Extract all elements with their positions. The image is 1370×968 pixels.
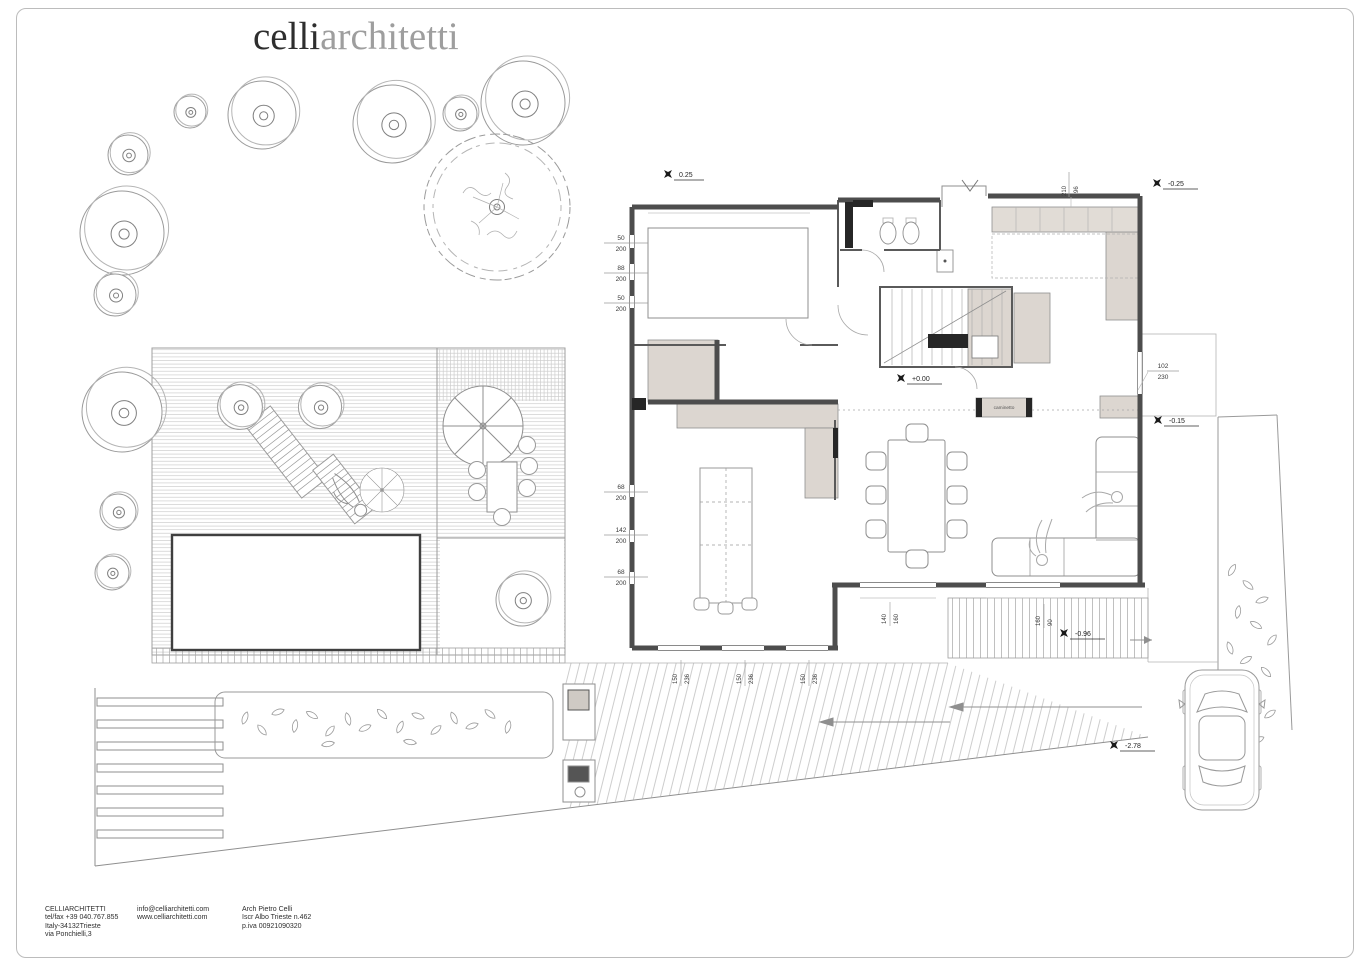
svg-text:230: 230 bbox=[1158, 374, 1169, 381]
terrace-steps bbox=[860, 598, 1152, 658]
svg-text:236: 236 bbox=[685, 673, 691, 684]
svg-text:200: 200 bbox=[616, 495, 627, 502]
studio-email: info@celliarchitetti.com bbox=[137, 906, 209, 914]
level-marker-icon bbox=[1150, 412, 1166, 428]
dimension: 102 230 bbox=[1138, 363, 1179, 390]
car-icon bbox=[1179, 670, 1265, 810]
pool bbox=[172, 535, 420, 650]
level-value: -0.15 bbox=[1169, 418, 1185, 425]
level-marker: +0.00 bbox=[893, 370, 942, 386]
umbrella-icon bbox=[360, 468, 404, 512]
planter-bed bbox=[215, 692, 553, 758]
svg-text:200: 200 bbox=[616, 246, 627, 253]
garden-stairs bbox=[95, 688, 223, 866]
level-marker: -0.15 bbox=[1150, 412, 1199, 428]
toilet-icon bbox=[880, 222, 896, 244]
dimension: 210 96 bbox=[1062, 172, 1080, 207]
level-value: +0.00 bbox=[912, 376, 930, 383]
svg-text:236: 236 bbox=[813, 673, 819, 684]
level-value: -2.78 bbox=[1125, 743, 1141, 750]
leaves bbox=[240, 707, 512, 747]
architect-register: Iscr Albo Trieste n.462 bbox=[242, 914, 311, 922]
titleblock-web: info@celliarchitetti.com www.celliarchit… bbox=[137, 906, 209, 923]
svg-text:68: 68 bbox=[617, 484, 625, 491]
bidet-icon bbox=[903, 222, 919, 244]
svg-text:142: 142 bbox=[616, 527, 627, 534]
house bbox=[630, 180, 1153, 658]
driveway-ramp bbox=[95, 663, 1148, 866]
svg-text:200: 200 bbox=[616, 538, 627, 545]
svg-text:102: 102 bbox=[1158, 363, 1169, 370]
svg-text:90: 90 bbox=[1048, 619, 1054, 626]
svg-text:140: 140 bbox=[882, 613, 888, 624]
svg-text:150: 150 bbox=[801, 673, 807, 684]
svg-text:96: 96 bbox=[1074, 186, 1080, 193]
level-marker-icon bbox=[893, 370, 909, 386]
svg-text:210: 210 bbox=[1062, 185, 1068, 196]
level-marker: 0.25 bbox=[660, 166, 704, 182]
canopy-tree bbox=[424, 134, 570, 280]
level-marker-icon bbox=[1149, 175, 1165, 191]
sofa bbox=[992, 437, 1140, 576]
svg-text:88: 88 bbox=[617, 265, 625, 272]
svg-text:236: 236 bbox=[749, 673, 755, 684]
level-marker-icon bbox=[660, 166, 676, 182]
svg-text:68: 68 bbox=[617, 569, 625, 576]
bathroom bbox=[880, 218, 953, 272]
titleblock-architect: Arch Pietro Celli Iscr Albo Trieste n.46… bbox=[242, 906, 311, 931]
dimension: 50 200 88 200 50 200 bbox=[604, 235, 648, 313]
titleblock-studio: CELLIARCHITETTI tel/fax +39 040.767.855 … bbox=[45, 906, 118, 939]
svg-text:50: 50 bbox=[617, 295, 625, 302]
room-label-fireplace: caminetto bbox=[994, 405, 1015, 411]
boundary-lines bbox=[1142, 334, 1218, 662]
porch-notch bbox=[942, 180, 986, 207]
studio-website: www.celliarchitetti.com bbox=[137, 914, 209, 922]
level-value: -0.25 bbox=[1168, 181, 1184, 188]
dimension: 68 200 142 200 68 200 bbox=[604, 484, 648, 587]
studio-city: Italy-34132Trieste bbox=[45, 923, 118, 931]
svg-text:160: 160 bbox=[894, 613, 900, 624]
umbrella-icon bbox=[443, 386, 523, 466]
studio-telfax: tel/fax +39 040.767.855 bbox=[45, 914, 118, 922]
svg-text:160: 160 bbox=[1036, 615, 1042, 626]
svg-text:200: 200 bbox=[616, 580, 627, 587]
upper-left-room bbox=[648, 228, 808, 318]
stairwell bbox=[880, 287, 1012, 367]
level-value: -0.96 bbox=[1075, 631, 1091, 638]
architect-vat: p.iva 00921090320 bbox=[242, 923, 311, 931]
site-plan-svg: 0.25 -0.25 +0.00 -0.15 -0.96 -2.78 bbox=[0, 0, 1370, 968]
svg-text:200: 200 bbox=[616, 306, 627, 313]
svg-text:150: 150 bbox=[737, 673, 743, 684]
svg-text:150: 150 bbox=[673, 673, 679, 684]
architect-name: Arch Pietro Celli bbox=[242, 906, 311, 914]
studio-name: CELLIARCHITETTI bbox=[45, 906, 118, 914]
svg-text:50: 50 bbox=[617, 235, 625, 242]
kitchen-island bbox=[694, 468, 757, 614]
dining-set bbox=[866, 424, 967, 568]
studio-street: via Ponchielli,3 bbox=[45, 931, 118, 939]
level-marker: -0.25 bbox=[1149, 175, 1198, 191]
svg-text:200: 200 bbox=[616, 276, 627, 283]
level-value: 0.25 bbox=[679, 172, 693, 179]
